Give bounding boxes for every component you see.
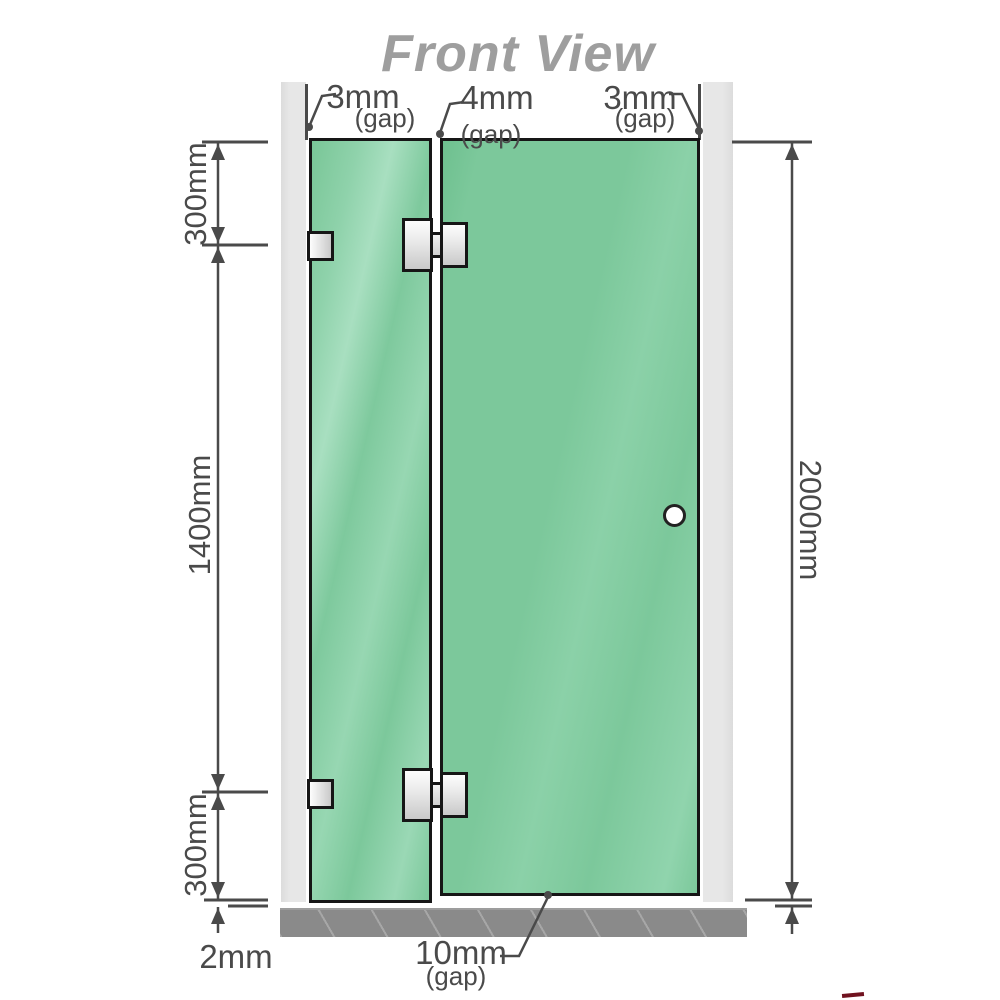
gap-label-middle-value: 4mm xyxy=(456,81,538,114)
dimension-right-total: 2000mm xyxy=(793,450,827,590)
front-view-diagram: Front View xyxy=(0,0,1000,1000)
dimension-annotations xyxy=(0,0,1000,1000)
dimension-left-middle: 1400mm xyxy=(183,445,217,585)
floor-clearance-label: 2mm xyxy=(196,940,276,973)
dimension-left-bottom: 300mm xyxy=(179,785,213,905)
bottom-gap-note: (gap) xyxy=(406,963,506,989)
gap-label-middle-note: (gap) xyxy=(450,121,532,147)
dimension-left-top: 300mm xyxy=(179,134,213,254)
gap-label-right-note: (gap) xyxy=(604,105,686,131)
gap-label-left-note: (gap) xyxy=(344,105,426,131)
